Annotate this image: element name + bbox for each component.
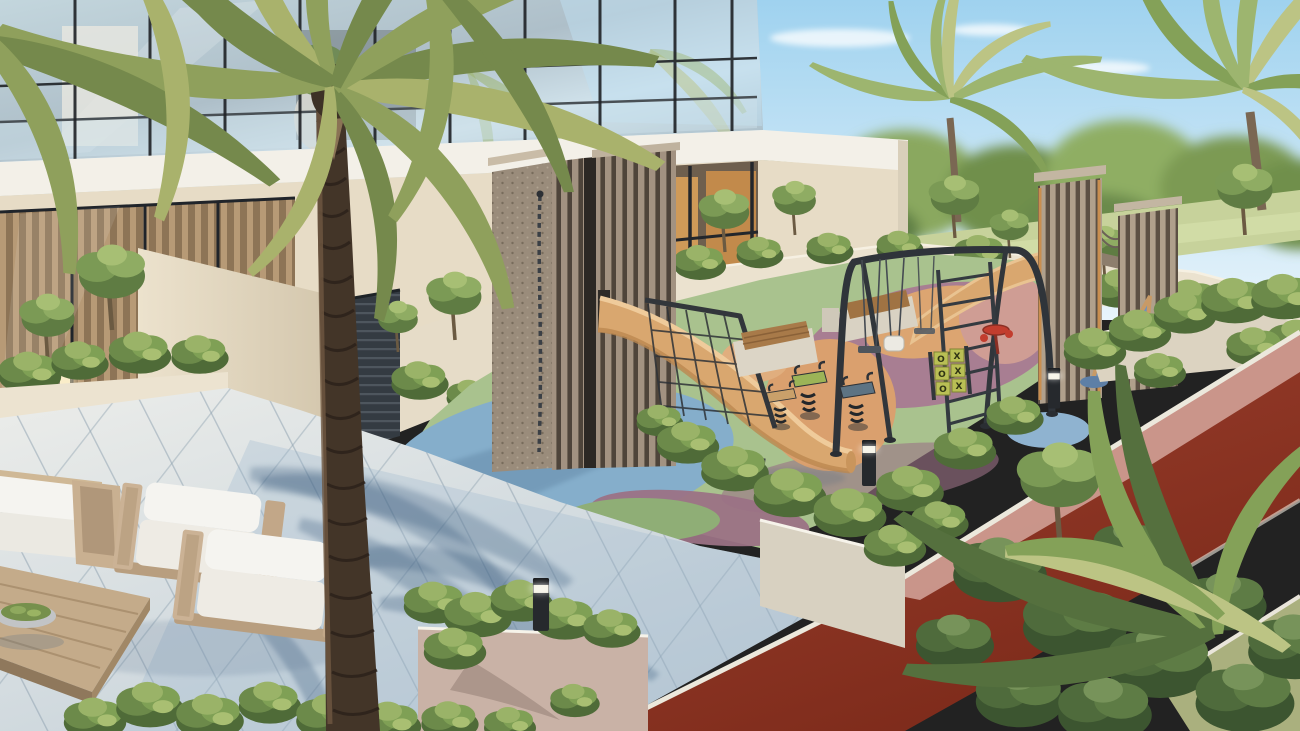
xo-cell: O: [937, 355, 945, 365]
rendering-canvas: O X O X O X: [0, 0, 1300, 731]
xo-cell: X: [955, 367, 962, 377]
xo-cell: O: [938, 370, 946, 380]
bollard-light: [530, 578, 553, 631]
xo-cell: X: [956, 382, 963, 392]
climbing-chain: [539, 196, 540, 452]
xo-cell: O: [939, 385, 947, 395]
xo-cell: X: [954, 352, 961, 362]
climbing-wall: [492, 162, 552, 472]
